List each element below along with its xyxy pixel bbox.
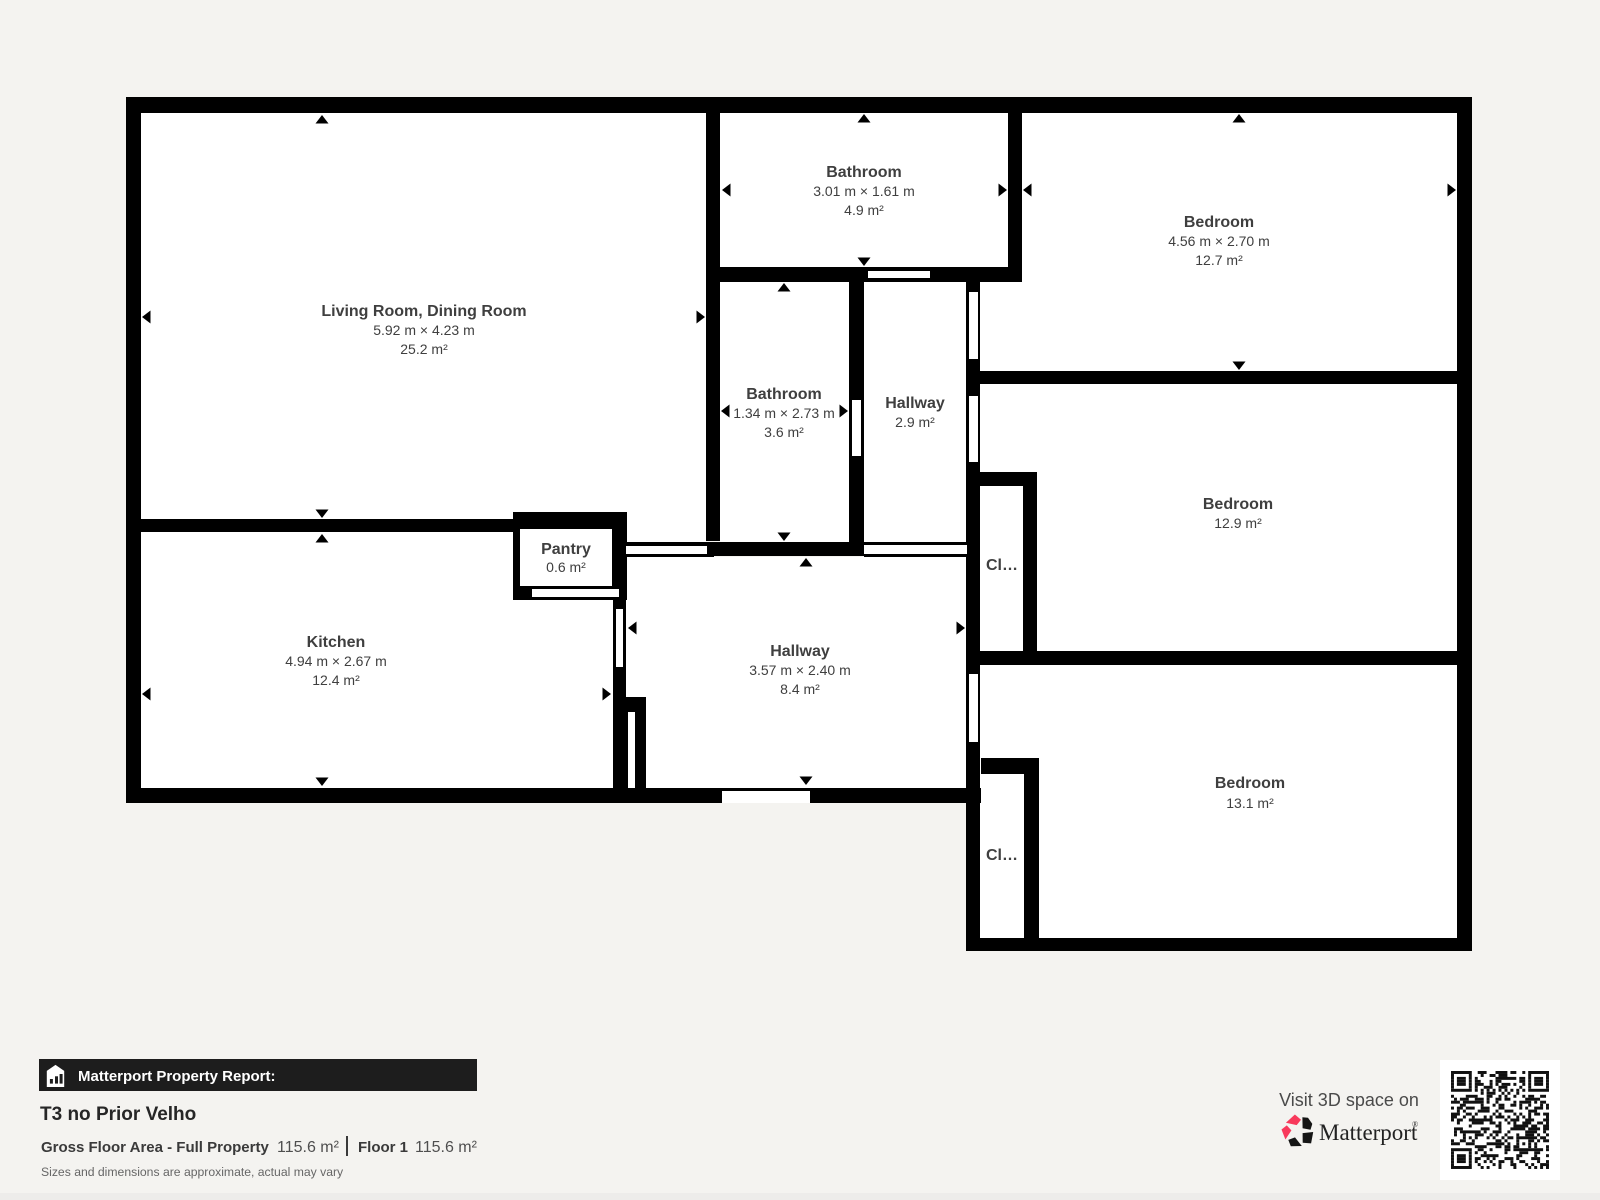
svg-text:1.34 m × 2.73 m: 1.34 m × 2.73 m (733, 405, 835, 421)
svg-text:Pantry: Pantry (541, 541, 591, 558)
svg-text:12.4 m²: 12.4 m² (312, 672, 360, 688)
svg-text:5.92 m × 4.23 m: 5.92 m × 4.23 m (373, 322, 475, 338)
svg-text:115.6 m²: 115.6 m² (415, 1139, 478, 1156)
svg-text:Cl…: Cl… (986, 847, 1018, 864)
svg-text:®: ® (1412, 1120, 1418, 1129)
svg-text:115.6 m²: 115.6 m² (277, 1139, 340, 1156)
svg-text:2.9 m²: 2.9 m² (895, 414, 935, 430)
svg-text:3.6 m²: 3.6 m² (764, 424, 804, 440)
svg-text:Gross Floor Area - Full Proper: Gross Floor Area - Full Property (41, 1139, 269, 1156)
svg-text:Visit 3D space on: Visit 3D space on (1279, 1090, 1419, 1110)
svg-text:Floor 1: Floor 1 (358, 1139, 408, 1156)
svg-text:Matterport Property Report:: Matterport Property Report: (78, 1068, 276, 1085)
svg-text:12.7 m²: 12.7 m² (1195, 252, 1243, 268)
svg-text:25.2 m²: 25.2 m² (400, 341, 448, 357)
svg-text:Matterport: Matterport (1319, 1120, 1418, 1145)
svg-text:T3 no Prior Velho: T3 no Prior Velho (40, 1104, 196, 1125)
svg-text:0.6 m²: 0.6 m² (546, 559, 586, 575)
svg-text:Living Room, Dining Room: Living Room, Dining Room (321, 303, 526, 320)
svg-text:12.9 m²: 12.9 m² (1214, 515, 1262, 531)
svg-text:3.57 m × 2.40 m: 3.57 m × 2.40 m (749, 662, 851, 678)
svg-text:Cl…: Cl… (986, 557, 1018, 574)
svg-text:Sizes and dimensions are appro: Sizes and dimensions are approximate, ac… (41, 1165, 344, 1179)
svg-text:Hallway: Hallway (770, 643, 830, 660)
svg-text:4.9 m²: 4.9 m² (844, 202, 884, 218)
svg-text:Hallway: Hallway (885, 395, 945, 412)
svg-text:Bedroom: Bedroom (1215, 775, 1285, 792)
svg-text:13.1 m²: 13.1 m² (1226, 795, 1274, 811)
svg-text:8.4 m²: 8.4 m² (780, 681, 820, 697)
svg-text:Bedroom: Bedroom (1184, 214, 1254, 231)
svg-text:Bedroom: Bedroom (1203, 496, 1273, 513)
svg-text:3.01 m × 1.61 m: 3.01 m × 1.61 m (813, 183, 915, 199)
svg-text:4.94 m × 2.67 m: 4.94 m × 2.67 m (285, 653, 387, 669)
svg-text:Bathroom: Bathroom (826, 164, 902, 181)
svg-text:4.56 m × 2.70 m: 4.56 m × 2.70 m (1168, 233, 1270, 249)
svg-text:Kitchen: Kitchen (307, 634, 366, 651)
svg-text:Bathroom: Bathroom (746, 386, 822, 403)
